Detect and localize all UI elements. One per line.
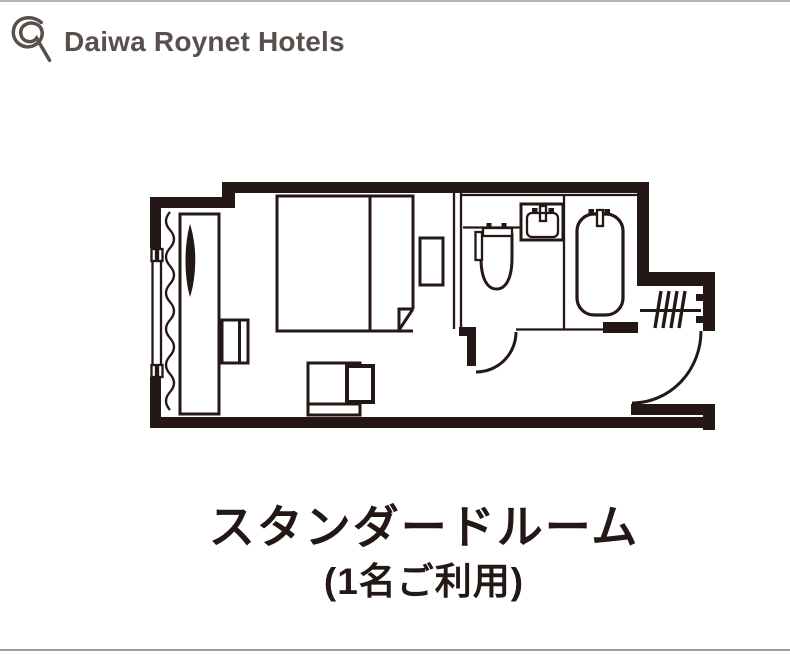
nightstand	[420, 238, 443, 285]
walls	[150, 182, 715, 430]
sheet-fold	[399, 309, 413, 331]
bathtub	[577, 209, 623, 315]
room-occupancy-subtitle: (1名ご利用)	[59, 561, 789, 604]
desk	[180, 214, 219, 414]
side-table	[347, 366, 373, 402]
toilet	[476, 223, 513, 289]
caption: スタンダードルーム (1名ご利用)	[59, 500, 789, 604]
faucet-icon	[597, 210, 603, 226]
window	[152, 249, 163, 377]
tv	[186, 224, 196, 297]
hanger-rack	[640, 291, 701, 328]
stool	[222, 320, 248, 363]
bottom-divider	[0, 649, 790, 651]
curtain	[166, 212, 174, 410]
bed	[277, 196, 413, 331]
bathroom-door	[476, 332, 516, 372]
page: Daiwa Roynet Hotels	[0, 0, 790, 658]
washbasin	[521, 204, 563, 240]
room-type-title: スタンダードルーム	[59, 500, 789, 555]
